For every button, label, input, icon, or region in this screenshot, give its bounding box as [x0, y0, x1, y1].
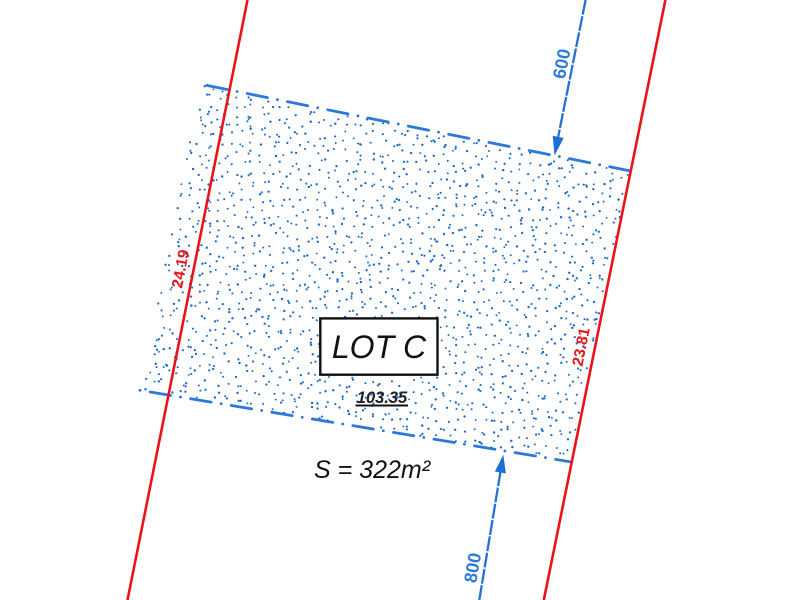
svg-text:S = 322m²: S = 322m²	[314, 456, 432, 484]
svg-text:103.35: 103.35	[357, 389, 408, 407]
svg-text:LOT C: LOT C	[332, 329, 427, 365]
